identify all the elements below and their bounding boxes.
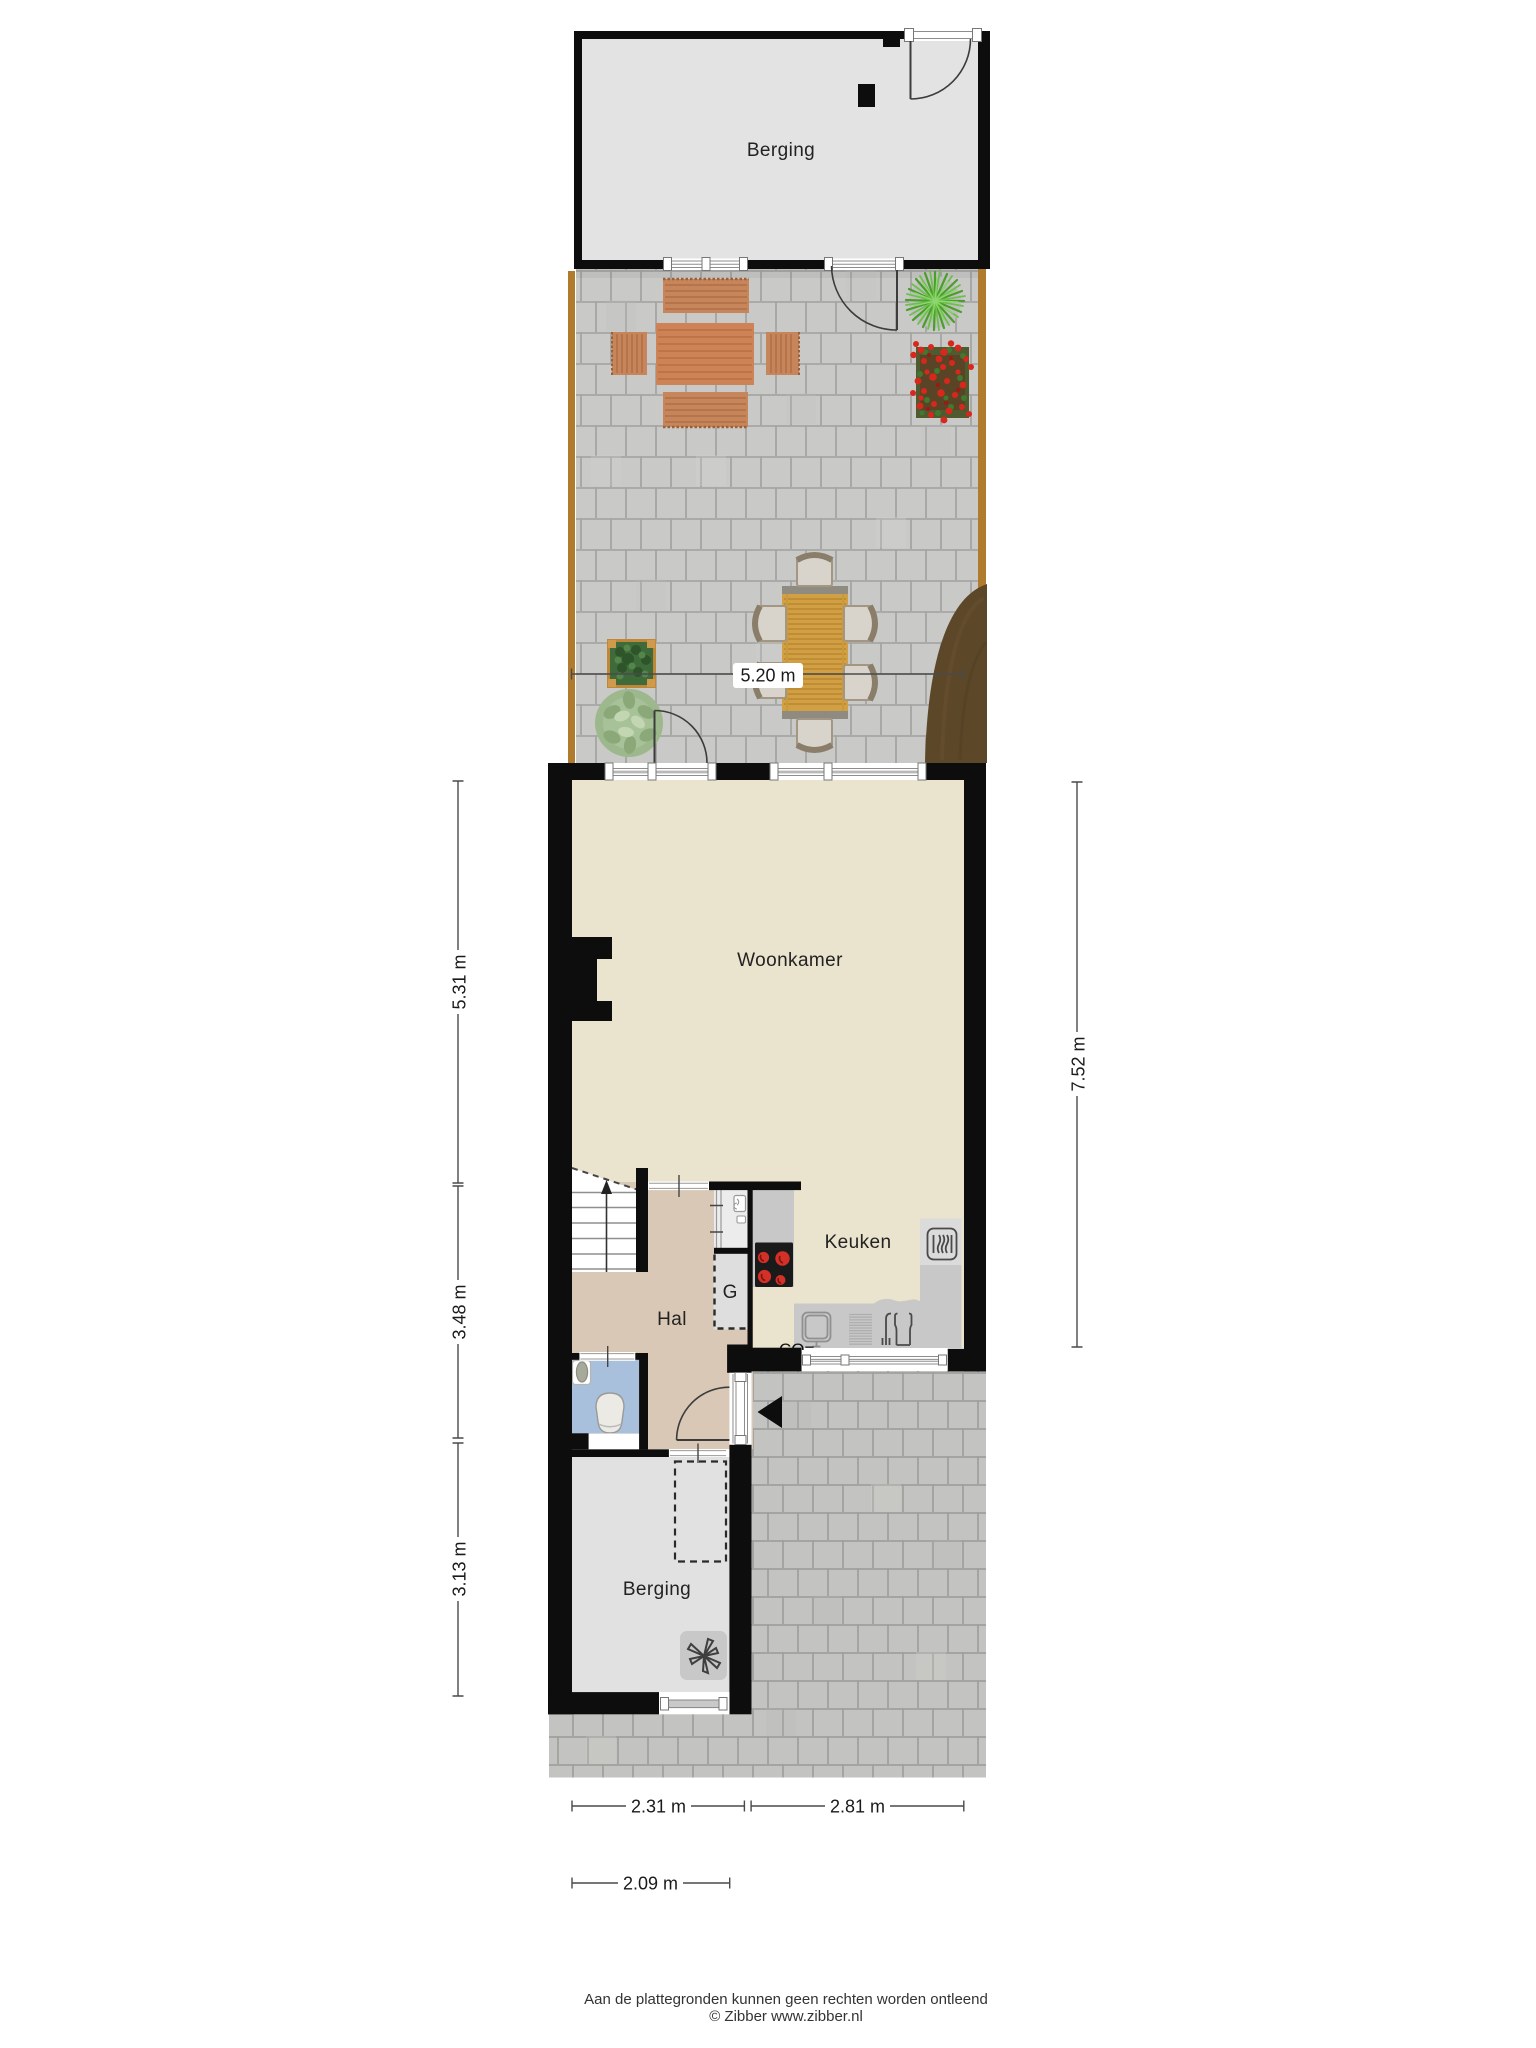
svg-text:3.48 m: 3.48 m (450, 1284, 470, 1339)
svg-text:Woonkamer: Woonkamer (737, 950, 843, 971)
svg-text:Keuken: Keuken (825, 1232, 892, 1253)
svg-text:Aan de plattegronden kunnen ge: Aan de plattegronden kunnen geen rechten… (584, 1991, 988, 2008)
svg-text:Hal: Hal (657, 1309, 687, 1330)
svg-text:G: G (723, 1282, 738, 1303)
svg-text:3.13 m: 3.13 m (450, 1541, 470, 1596)
svg-text:7.52 m: 7.52 m (1069, 1036, 1089, 1091)
svg-text:5.31 m: 5.31 m (450, 954, 470, 1009)
svg-text:2.31 m: 2.31 m (631, 1797, 686, 1817)
svg-text:2.09 m: 2.09 m (623, 1874, 678, 1894)
svg-text:2.81 m: 2.81 m (830, 1797, 885, 1817)
svg-text:Berging: Berging (623, 1579, 691, 1600)
svg-text:5.20 m: 5.20 m (740, 666, 795, 686)
svg-text:Berging: Berging (747, 140, 815, 161)
svg-text:© Zibber www.zibber.nl: © Zibber www.zibber.nl (709, 2008, 863, 2025)
